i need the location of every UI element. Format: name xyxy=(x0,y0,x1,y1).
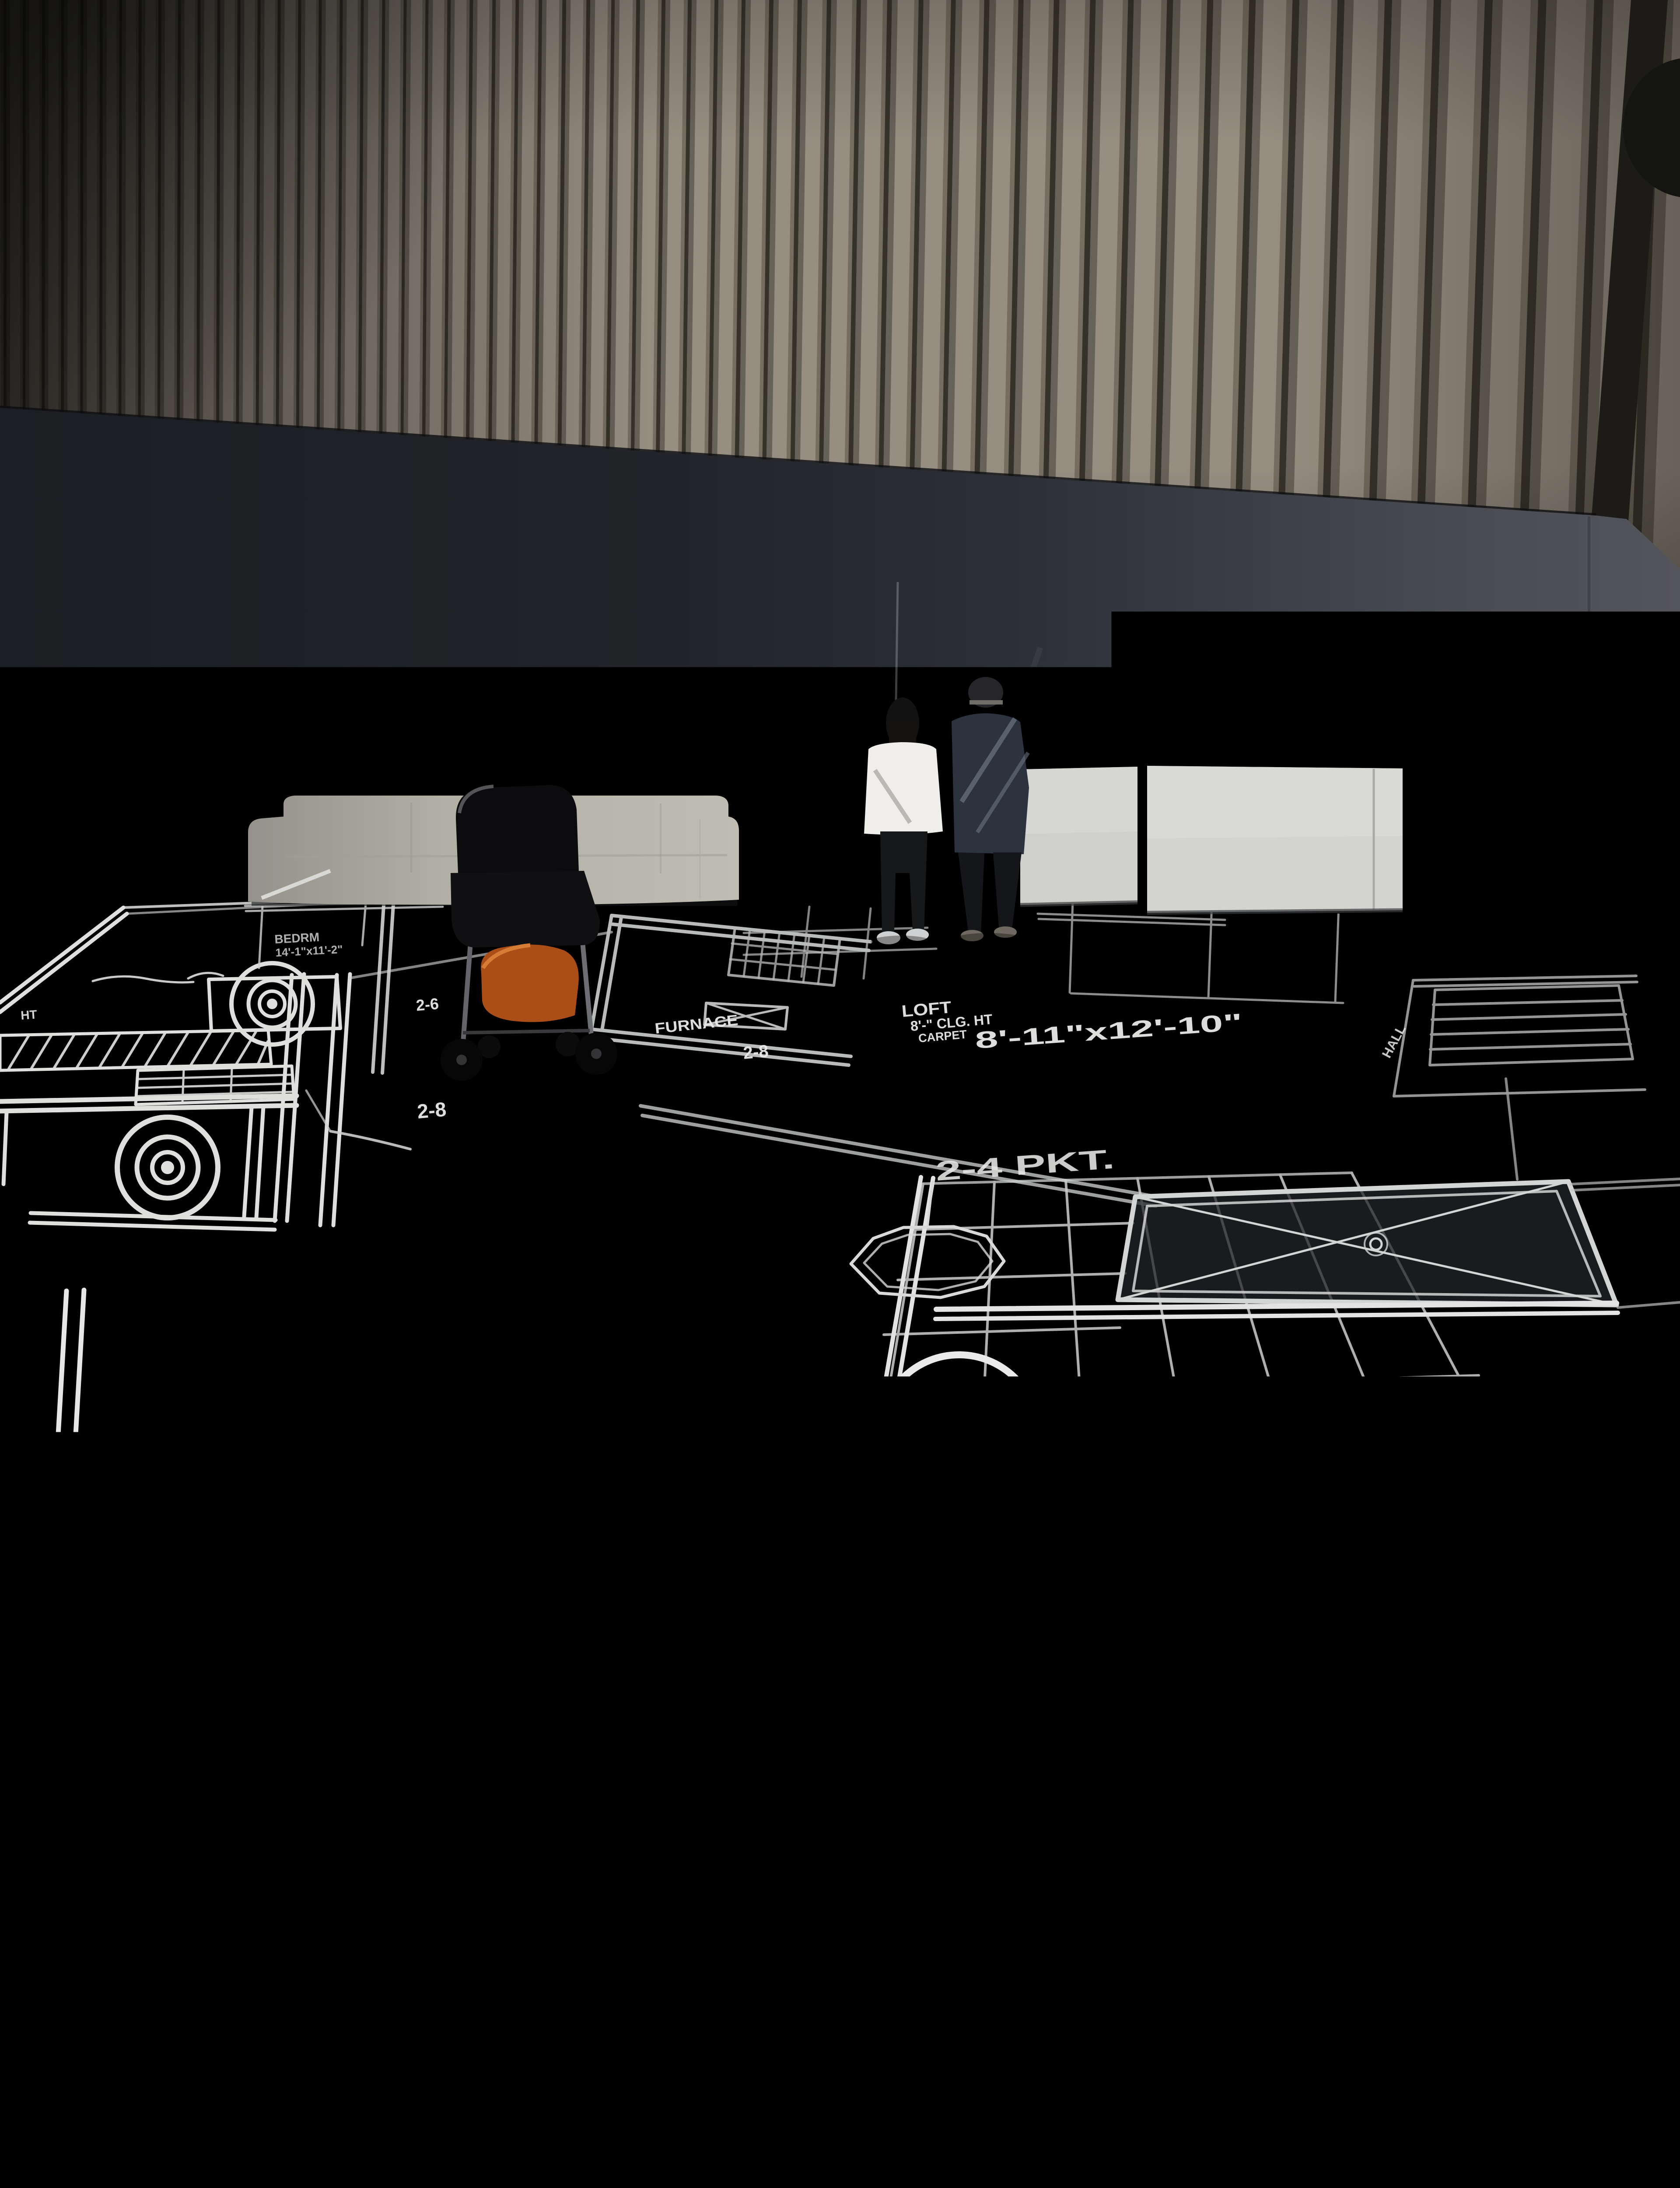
svg-text:2-8: 2-8 xyxy=(742,1041,769,1063)
svg-text:HT: HT xyxy=(20,1007,37,1022)
svg-text:2-6: 2-6 xyxy=(415,995,439,1014)
svg-text:2-8: 2-8 xyxy=(416,1098,447,1123)
